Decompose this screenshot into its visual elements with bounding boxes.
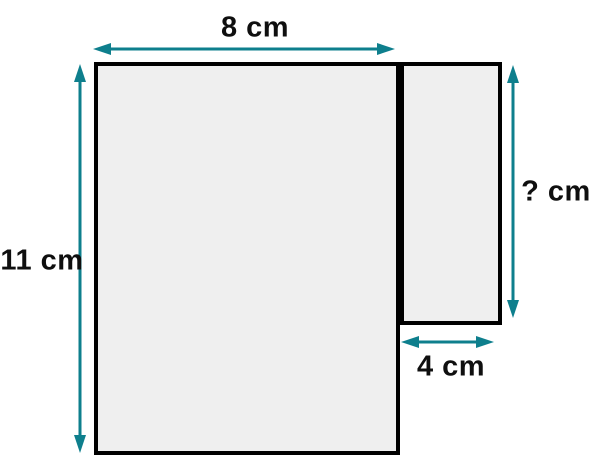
large-rectangle bbox=[94, 62, 400, 455]
right-height-double-arrow-icon bbox=[507, 65, 519, 318]
small-rectangle bbox=[400, 62, 502, 325]
bottom-width-double-arrow-icon bbox=[401, 336, 494, 348]
geometry-diagram: 8 cm 11 cm ? cm 4 cm bbox=[0, 0, 601, 469]
bottom-width-label: 4 cm bbox=[417, 353, 485, 382]
top-width-label: 8 cm bbox=[221, 14, 289, 43]
top-width-double-arrow-icon bbox=[93, 43, 395, 55]
left-height-label: 11 cm bbox=[0, 247, 83, 276]
right-height-label: ? cm bbox=[521, 178, 591, 207]
